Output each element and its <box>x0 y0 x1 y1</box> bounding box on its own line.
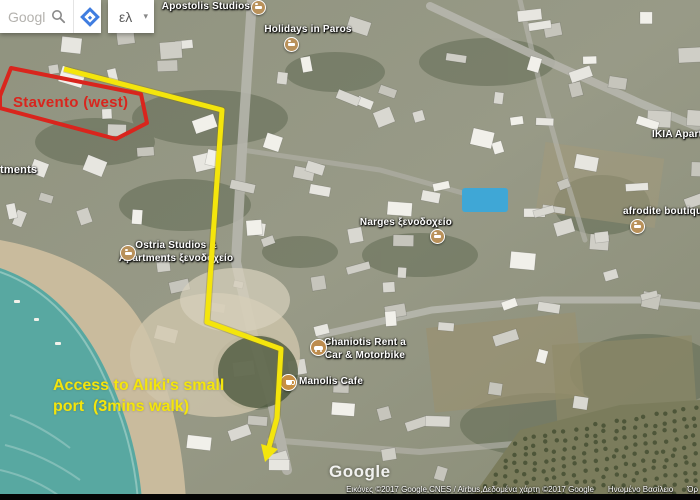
language-button[interactable]: ελ ▾ <box>108 0 154 33</box>
map-label-narges-hotel[interactable]: Narges ξενοδοχείο <box>360 216 452 229</box>
lodging-icon[interactable] <box>120 245 136 261</box>
attribution-region: Ηνωμένο Βασίλειο <box>608 485 673 494</box>
directions-icon[interactable] <box>80 7 100 27</box>
lodging-icon[interactable] <box>251 0 266 15</box>
beach-trees <box>218 336 298 408</box>
map-label-apostolis-studios[interactable]: Apostolis Studios <box>162 0 250 13</box>
map-label-holidays-in-paros[interactable]: Holidays in Paros <box>264 23 351 36</box>
car-rental-icon[interactable] <box>310 339 327 356</box>
stavento-annotation-label: Stavento (west) <box>13 94 128 111</box>
attribution-credits: Εικόνες ©2017 Google,CNES / Airbus,Δεδομ… <box>346 485 594 494</box>
swimming-pool <box>462 188 508 212</box>
port-access-annotation-label: Access to Aliki's smallport (3mins walk) <box>53 375 224 417</box>
search-bar[interactable]: Googl <box>0 0 101 33</box>
cafe-icon[interactable] <box>280 374 297 391</box>
lodging-icon[interactable] <box>630 219 645 234</box>
map-label-tments[interactable]: tments <box>0 164 37 177</box>
map-screenshot: Google Εικόνες ©2017 Google,CNES / Airbu… <box>0 0 700 500</box>
search-icon[interactable] <box>51 9 66 24</box>
chevron-down-icon[interactable]: ▾ <box>143 11 148 22</box>
toolbar-divider <box>73 0 74 33</box>
lodging-icon[interactable] <box>284 37 299 52</box>
satellite-map[interactable] <box>0 0 700 500</box>
language-label: ελ <box>119 9 132 25</box>
attribution-terms-link[interactable]: Όρ <box>687 485 698 494</box>
lodging-icon[interactable] <box>430 229 445 244</box>
map-label-afrodite-boutique[interactable]: afrodite boutique <box>623 205 700 218</box>
beach-area-2 <box>180 268 290 332</box>
map-label-ikia-apartments[interactable]: IKIA Apartm <box>652 128 700 141</box>
search-input[interactable]: Googl <box>8 9 45 25</box>
google-watermark[interactable]: Google <box>329 462 391 482</box>
bottom-black-bar <box>0 494 700 500</box>
map-label-chaniotis-rent-a-car[interactable]: Chaniotis Rent a Car & Motorbike <box>324 336 406 362</box>
map-label-manolis-cafe[interactable]: Manolis Cafe <box>299 375 363 388</box>
attribution-bar: Εικόνες ©2017 Google,CNES / Airbus,Δεδομ… <box>346 485 698 494</box>
